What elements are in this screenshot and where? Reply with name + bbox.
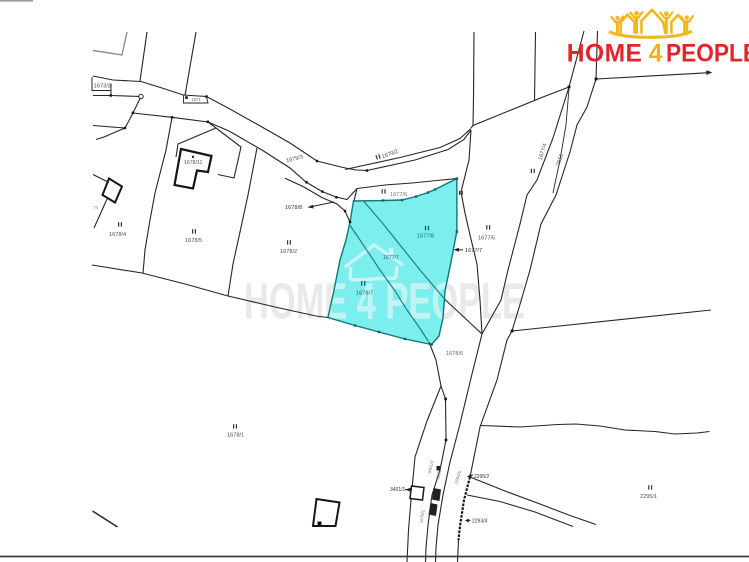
svg-text:2295/2: 2295/2 xyxy=(474,474,490,480)
svg-text:1673/2: 1673/2 xyxy=(94,83,111,89)
svg-text:1678/6: 1678/6 xyxy=(446,351,463,357)
svg-text:2293/4: 2293/4 xyxy=(472,519,488,525)
svg-text:1678/11: 1678/11 xyxy=(184,160,202,166)
svg-text:1678/1: 1678/1 xyxy=(227,433,244,439)
svg-text:1678/7: 1678/7 xyxy=(356,291,373,297)
svg-text:1671: 1671 xyxy=(192,97,202,102)
svg-text:PEOPLE: PEOPLE xyxy=(666,40,749,67)
svg-text:4: 4 xyxy=(649,40,663,67)
svg-text:1678/8: 1678/8 xyxy=(285,205,302,211)
svg-text:1678/4: 1678/4 xyxy=(109,232,126,238)
svg-text:1677/7: 1677/7 xyxy=(383,255,399,261)
svg-text:1677/7: 1677/7 xyxy=(465,248,482,254)
svg-text:1678/5: 1678/5 xyxy=(185,238,202,244)
svg-text:1678/2: 1678/2 xyxy=(280,249,297,255)
svg-text:1677/5: 1677/5 xyxy=(478,236,495,242)
svg-text:1677/8: 1677/8 xyxy=(417,234,434,240)
svg-text:3451/1: 3451/1 xyxy=(390,487,406,493)
svg-text:HOME: HOME xyxy=(567,40,643,67)
svg-text:78: 78 xyxy=(93,205,99,210)
svg-text:2295/1: 2295/1 xyxy=(640,494,657,500)
svg-text:1677/6: 1677/6 xyxy=(390,192,407,198)
